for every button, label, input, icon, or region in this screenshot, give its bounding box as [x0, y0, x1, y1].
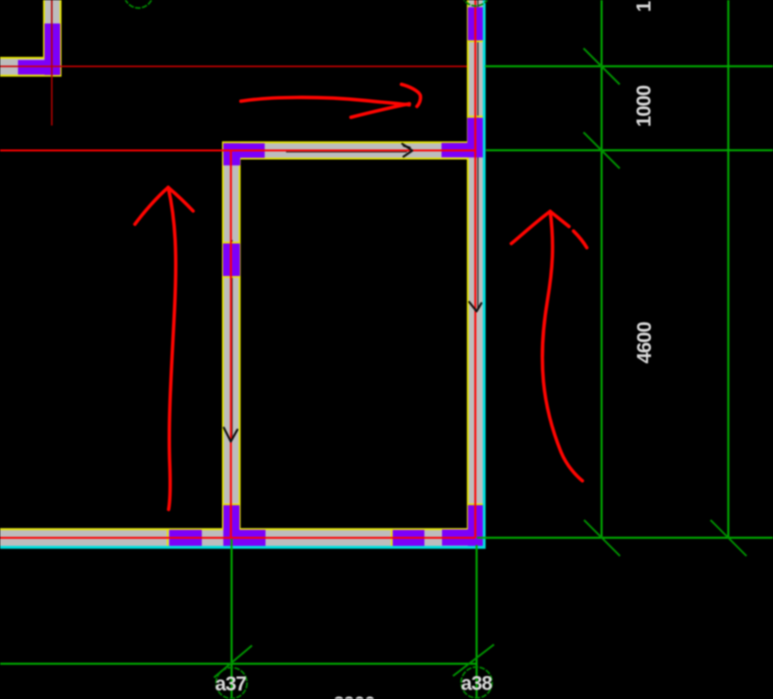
svg-text:4600: 4600 [634, 322, 656, 364]
svg-text:1: 1 [634, 1, 656, 12]
svg-text:1000: 1000 [634, 85, 656, 127]
svg-text:a38: a38 [461, 673, 493, 695]
svg-text:2900: 2900 [333, 694, 375, 699]
svg-text:a37: a37 [215, 674, 247, 696]
